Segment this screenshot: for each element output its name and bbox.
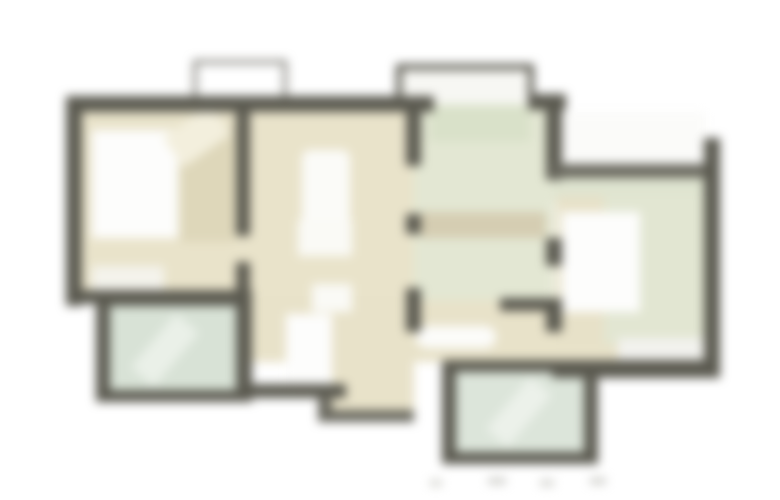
wc-room <box>286 314 332 386</box>
dimension-dash-1 <box>430 480 442 486</box>
hall-cabinet-band <box>420 212 546 238</box>
entry-door-mat <box>430 106 530 142</box>
dimension-dash-2 <box>488 478 506 484</box>
living-sofa <box>298 220 352 256</box>
corridor-table-pill <box>416 326 496 348</box>
right-window-sill <box>618 338 706 362</box>
dimension-dash-4 <box>590 478 606 484</box>
wall-hall-right-3 <box>546 298 562 332</box>
wall-top-main <box>66 96 434 112</box>
wall-hall-left-1 <box>406 108 421 166</box>
floor-plan-canvas <box>0 0 780 500</box>
floor-plan <box>0 0 780 500</box>
living-chair <box>312 284 352 312</box>
dimension-dash-3 <box>540 480 554 486</box>
wall-hall-right-2 <box>546 238 562 266</box>
right-terrace-white <box>560 112 706 170</box>
wall-hall-left-2 <box>406 214 421 234</box>
wall-left-wing-bottom <box>66 290 252 304</box>
wall-bedroom-divider-top <box>236 108 250 236</box>
wall-right-wing-bottom <box>552 360 720 378</box>
wall-step-bottom <box>318 410 414 422</box>
wall-left <box>66 96 82 306</box>
wall-hall-bottom-stub <box>500 298 548 311</box>
left-bed <box>92 130 178 238</box>
right-bed <box>562 212 640 312</box>
left-dresser <box>92 266 164 292</box>
wall-hall-left-3 <box>406 288 421 332</box>
wall-right-wing-top <box>552 164 708 178</box>
wall-right <box>704 138 720 378</box>
